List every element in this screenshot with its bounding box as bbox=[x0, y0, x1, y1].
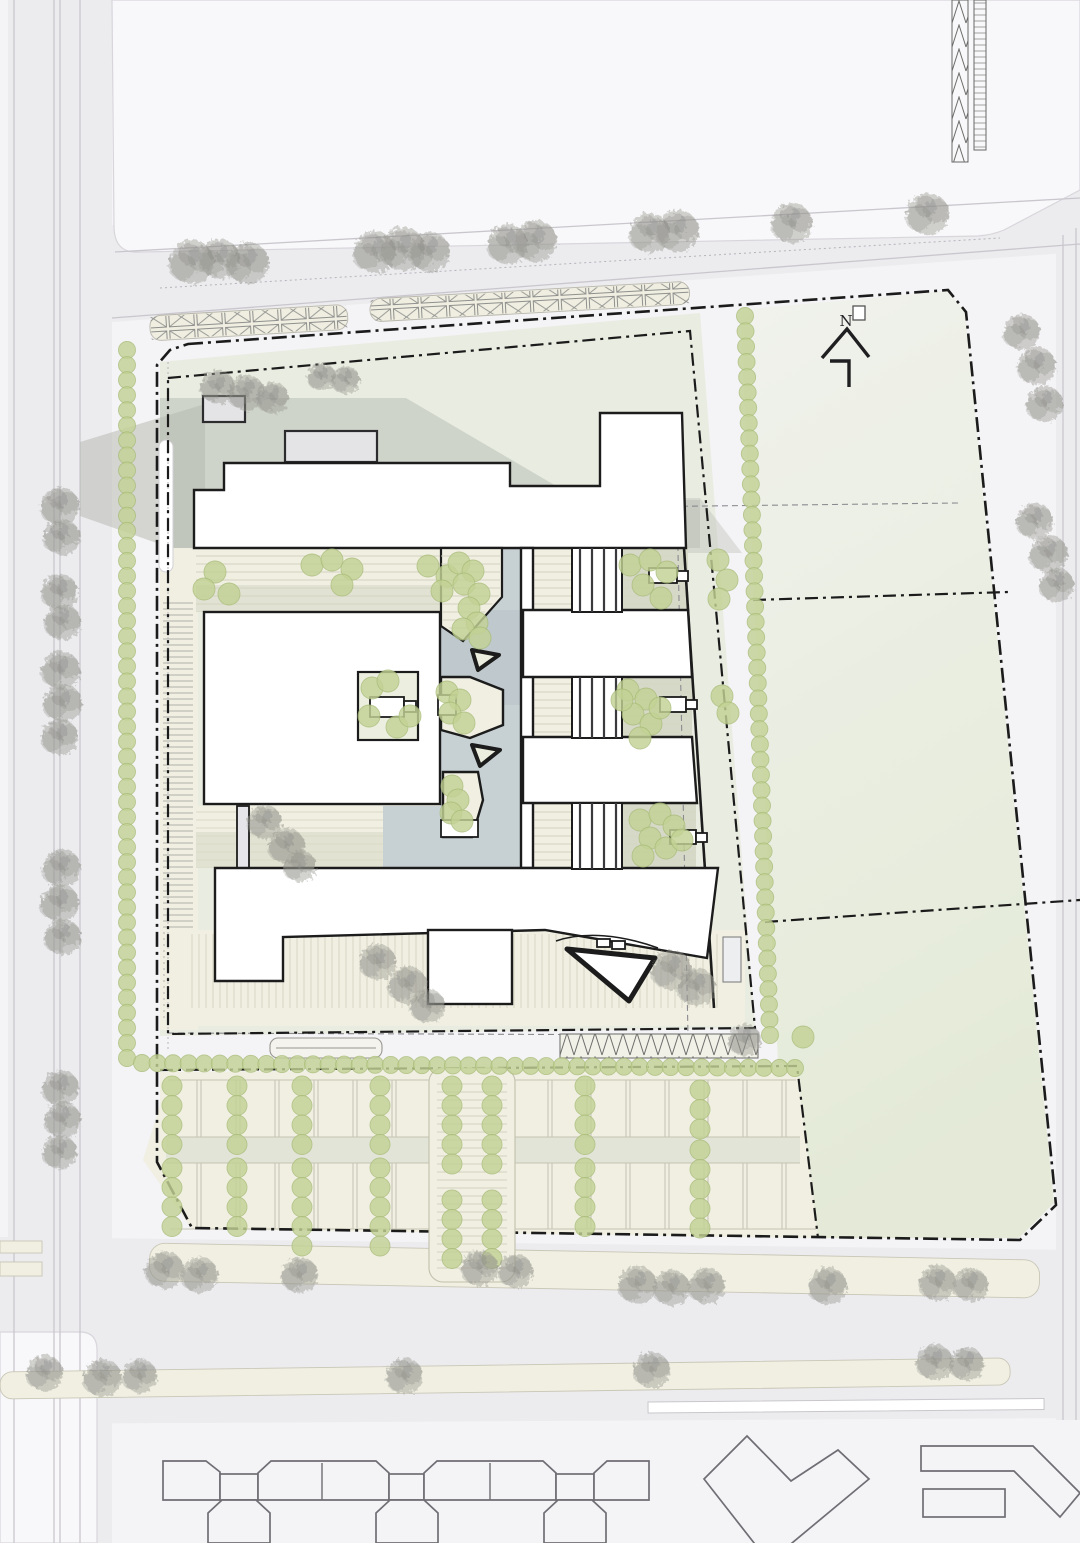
shrub-icon bbox=[162, 1096, 182, 1116]
shrub-icon bbox=[320, 1056, 337, 1073]
shrub-icon bbox=[482, 1210, 502, 1230]
shrub-icon bbox=[756, 874, 773, 891]
west-crossing-strip-2 bbox=[0, 1262, 42, 1276]
shrub-icon bbox=[453, 712, 475, 734]
shrub-icon bbox=[662, 1059, 679, 1076]
shrub-icon bbox=[227, 1096, 247, 1116]
shrub-icon bbox=[744, 522, 761, 539]
shrub-icon bbox=[629, 727, 651, 749]
shrub-icon bbox=[301, 554, 323, 576]
shrub-icon bbox=[119, 552, 136, 569]
shrub-icon bbox=[749, 675, 766, 692]
shrub-icon bbox=[273, 1056, 290, 1073]
shrub-icon bbox=[162, 1076, 182, 1096]
shrub-icon bbox=[742, 460, 759, 477]
shrub-icon bbox=[119, 537, 136, 554]
shrub-icon bbox=[162, 1158, 182, 1178]
shrub-icon bbox=[193, 578, 215, 600]
shrub-icon bbox=[750, 690, 767, 707]
rowhouse-1 bbox=[163, 1461, 220, 1500]
shrub-icon bbox=[134, 1055, 151, 1072]
shrub-icon bbox=[753, 782, 770, 799]
shrub-icon bbox=[748, 629, 765, 646]
shrub-icon bbox=[119, 974, 136, 991]
shrub-icon bbox=[632, 845, 654, 867]
shrub-icon bbox=[292, 1115, 312, 1135]
shrub-icon bbox=[119, 643, 136, 660]
shrub-icon bbox=[611, 689, 633, 711]
shrub-icon bbox=[717, 702, 739, 724]
shrub-icon bbox=[649, 697, 671, 719]
shrub-icon bbox=[227, 1178, 247, 1198]
shrub-icon bbox=[119, 417, 136, 434]
shrub-icon bbox=[119, 357, 136, 374]
shrub-icon bbox=[351, 1056, 368, 1073]
east-wing-3 bbox=[523, 737, 697, 803]
shrub-icon bbox=[631, 1058, 648, 1075]
shrub-icon bbox=[227, 1055, 244, 1072]
shrub-icon bbox=[292, 1096, 312, 1116]
shrub-icon bbox=[747, 613, 764, 630]
shrub-icon bbox=[119, 869, 136, 886]
shrub-icon bbox=[743, 491, 760, 508]
shrub-icon bbox=[358, 705, 380, 727]
shrub-icon bbox=[482, 1190, 502, 1210]
shrub-icon bbox=[227, 1135, 247, 1155]
shrub-icon bbox=[744, 537, 761, 554]
shrub-icon bbox=[292, 1135, 312, 1155]
rowhouse-link-3 bbox=[556, 1474, 594, 1500]
shrub-icon bbox=[444, 1057, 461, 1074]
shrub-icon bbox=[739, 369, 756, 386]
bumpout-1b bbox=[677, 571, 688, 581]
shrub-icon bbox=[119, 733, 136, 750]
shrub-icon bbox=[690, 1100, 710, 1120]
rowhouse-4 bbox=[594, 1461, 649, 1500]
shrub-icon bbox=[370, 1096, 390, 1116]
shrub-icon bbox=[709, 1059, 726, 1076]
shrub-icon bbox=[739, 384, 756, 401]
shrub-icon bbox=[119, 432, 136, 449]
rowhouse-link-2 bbox=[389, 1474, 424, 1500]
shrub-icon bbox=[690, 1199, 710, 1219]
shrub-icon bbox=[553, 1058, 570, 1075]
shrub-icon bbox=[377, 670, 399, 692]
shrub-icon bbox=[575, 1096, 595, 1116]
shrub-icon bbox=[442, 1154, 462, 1174]
shrub-icon bbox=[482, 1135, 502, 1155]
shrub-icon bbox=[693, 1059, 710, 1076]
shrub-icon bbox=[227, 1076, 247, 1096]
shrub-icon bbox=[757, 889, 774, 906]
shrub-icon bbox=[119, 959, 136, 976]
shrub-icon bbox=[755, 843, 772, 860]
shrub-icon bbox=[413, 1057, 430, 1074]
north-label: N bbox=[839, 312, 852, 330]
shrub-icon bbox=[119, 944, 136, 961]
shrub-icon bbox=[759, 950, 776, 967]
shrub-icon bbox=[742, 476, 759, 493]
shrub-icon bbox=[584, 1058, 601, 1075]
shrub-icon bbox=[451, 810, 473, 832]
shrub-icon bbox=[746, 583, 763, 600]
shrub-icon bbox=[760, 996, 777, 1013]
shrub-icon bbox=[119, 628, 136, 645]
shrub-icon bbox=[754, 797, 771, 814]
shrub-icon bbox=[787, 1060, 804, 1077]
shrub-icon bbox=[538, 1058, 555, 1075]
shrub-icon bbox=[442, 1096, 462, 1116]
shrub-icon bbox=[476, 1057, 493, 1074]
rowhouse-stem-2 bbox=[376, 1500, 438, 1543]
shrub-icon bbox=[482, 1115, 502, 1135]
shrub-icon bbox=[741, 445, 758, 462]
shrub-icon bbox=[740, 415, 757, 432]
shrub-icon bbox=[119, 718, 136, 735]
shrub-icon bbox=[575, 1158, 595, 1178]
shrub-icon bbox=[119, 763, 136, 780]
shrub-icon bbox=[370, 1197, 390, 1217]
shrub-icon bbox=[600, 1058, 617, 1075]
shrub-icon bbox=[460, 1057, 477, 1074]
shrub-icon bbox=[370, 1076, 390, 1096]
shrub-icon bbox=[119, 613, 136, 630]
shrub-icon bbox=[292, 1076, 312, 1096]
rowhouse-stem-1 bbox=[208, 1500, 270, 1543]
shrub-icon bbox=[619, 554, 641, 576]
shrub-icon bbox=[162, 1135, 182, 1155]
shrub-icon bbox=[119, 462, 136, 479]
shrub-icon bbox=[442, 1229, 462, 1249]
shrub-icon bbox=[119, 778, 136, 795]
east-ramp bbox=[723, 937, 741, 982]
shrub-icon bbox=[752, 751, 769, 768]
shrub-icon bbox=[746, 568, 763, 585]
central-link-corridor bbox=[521, 548, 533, 868]
shrub-icon bbox=[370, 1217, 390, 1237]
gap3-link bbox=[237, 806, 249, 868]
shrub-icon bbox=[292, 1178, 312, 1198]
shrub-icon bbox=[575, 1217, 595, 1237]
shrub-icon bbox=[671, 829, 693, 851]
shrub-icon bbox=[738, 353, 755, 370]
west-crossing-strip-1 bbox=[0, 1241, 42, 1253]
shrub-icon bbox=[724, 1059, 741, 1076]
shrub-icon bbox=[119, 748, 136, 765]
shrub-icon bbox=[119, 387, 136, 404]
shrub-icon bbox=[690, 1119, 710, 1139]
shrub-icon bbox=[429, 1057, 446, 1074]
shrub-icon bbox=[745, 552, 762, 569]
shrub-icon bbox=[399, 705, 421, 727]
annex-north bbox=[285, 431, 377, 462]
shrub-icon bbox=[755, 828, 772, 845]
shrub-icon bbox=[321, 549, 343, 571]
bumpout-3b bbox=[696, 833, 707, 842]
shrub-icon bbox=[227, 1197, 247, 1217]
shrub-icon bbox=[575, 1115, 595, 1135]
shrub-icon bbox=[292, 1217, 312, 1237]
shrub-icon bbox=[442, 1076, 462, 1096]
shrub-icon bbox=[119, 808, 136, 825]
shrub-icon bbox=[370, 1135, 390, 1155]
shrub-icon bbox=[292, 1236, 312, 1256]
shrub-icon bbox=[242, 1055, 259, 1072]
shrub-icon bbox=[162, 1115, 182, 1135]
shrub-icon bbox=[762, 1027, 779, 1044]
shrub-icon bbox=[752, 766, 769, 783]
shrub-icon bbox=[442, 1249, 462, 1269]
shrub-icon bbox=[119, 1004, 136, 1021]
shrub-icon bbox=[482, 1096, 502, 1116]
shrub-icon bbox=[707, 549, 729, 571]
shrub-icon bbox=[741, 430, 758, 447]
west-dropoff-lane bbox=[159, 440, 173, 572]
shrub-icon bbox=[119, 1034, 136, 1051]
shrub-icon bbox=[119, 929, 136, 946]
shrub-icon bbox=[575, 1076, 595, 1096]
shrub-icon bbox=[507, 1057, 524, 1074]
shrub-icon bbox=[370, 1178, 390, 1198]
shrub-icon bbox=[119, 673, 136, 690]
shrub-icon bbox=[442, 1115, 462, 1135]
shrub-icon bbox=[761, 1011, 778, 1028]
shrub-icon bbox=[119, 793, 136, 810]
shrub-icon bbox=[740, 1059, 757, 1076]
shrub-icon bbox=[632, 574, 654, 596]
shrub-icon bbox=[258, 1055, 275, 1072]
shrub-icon bbox=[119, 583, 136, 600]
shrub-icon bbox=[575, 1197, 595, 1217]
canopy-stair-2 bbox=[612, 941, 625, 949]
shrub-icon bbox=[749, 659, 766, 676]
shrub-icon bbox=[431, 580, 453, 602]
shrub-icon bbox=[482, 1154, 502, 1174]
shrub-icon bbox=[211, 1055, 228, 1072]
shrub-icon bbox=[331, 574, 353, 596]
shrub-icon bbox=[758, 919, 775, 936]
shrub-icon bbox=[119, 507, 136, 524]
site-entrance-marker-2 bbox=[853, 306, 865, 320]
shrub-icon bbox=[759, 965, 776, 982]
shrub-icon bbox=[737, 308, 754, 325]
shrub-icon bbox=[758, 935, 775, 952]
bumpout-2b bbox=[686, 700, 697, 709]
shrub-icon bbox=[367, 1056, 384, 1073]
shrub-icon bbox=[755, 1059, 772, 1076]
shrub-icon bbox=[119, 522, 136, 539]
shrub-icon bbox=[119, 1019, 136, 1036]
shrub-icon bbox=[227, 1158, 247, 1178]
shrub-icon bbox=[690, 1218, 710, 1238]
shrub-icon bbox=[678, 1059, 695, 1076]
shrub-icon bbox=[690, 1140, 710, 1160]
shrub-icon bbox=[119, 567, 136, 584]
shrub-icon bbox=[218, 583, 240, 605]
shrub-icon bbox=[482, 1076, 502, 1096]
shrub-icon bbox=[575, 1178, 595, 1198]
shrub-icon bbox=[771, 1059, 788, 1076]
shrub-icon bbox=[119, 854, 136, 871]
shrub-icon bbox=[442, 1135, 462, 1155]
shrub-icon bbox=[119, 598, 136, 615]
shrub-icon bbox=[119, 372, 136, 389]
shrub-icon bbox=[162, 1217, 182, 1237]
shrub-icon bbox=[119, 477, 136, 494]
shrub-icon bbox=[162, 1178, 182, 1198]
shrub-icon bbox=[708, 588, 730, 610]
shrub-icon bbox=[748, 644, 765, 661]
shrub-icon bbox=[119, 914, 136, 931]
shrub-icon bbox=[180, 1055, 197, 1072]
shrub-icon bbox=[647, 1058, 664, 1075]
shrub-icon bbox=[119, 1050, 136, 1067]
shrub-icon bbox=[398, 1057, 415, 1074]
shrub-icon bbox=[482, 1229, 502, 1249]
shrub-icon bbox=[656, 561, 678, 583]
canopy-stair-1 bbox=[597, 939, 610, 947]
shrub-icon bbox=[650, 587, 672, 609]
shrub-icon bbox=[119, 899, 136, 916]
rowhouse-stem-3 bbox=[544, 1500, 606, 1543]
shrub-icon bbox=[760, 981, 777, 998]
shrub-icon bbox=[336, 1056, 353, 1073]
shrub-icon bbox=[469, 627, 491, 649]
shrub-icon bbox=[149, 1055, 166, 1072]
shrub-icon bbox=[119, 824, 136, 841]
shrub-icon bbox=[442, 1210, 462, 1230]
shrub-icon bbox=[750, 705, 767, 722]
shrub-icon bbox=[162, 1197, 182, 1217]
shrub-icon bbox=[491, 1057, 508, 1074]
shrub-icon bbox=[196, 1055, 213, 1072]
shrub-icon bbox=[792, 1026, 814, 1048]
shrub-icon bbox=[615, 1058, 632, 1075]
shrub-icon bbox=[119, 658, 136, 675]
shrub-icon bbox=[754, 812, 771, 829]
shrub-icon bbox=[751, 721, 768, 738]
shrub-icon bbox=[743, 506, 760, 523]
shrub-icon bbox=[690, 1179, 710, 1199]
shrub-icon bbox=[305, 1056, 322, 1073]
shrub-icon bbox=[119, 839, 136, 856]
shrub-icon bbox=[690, 1080, 710, 1100]
shrub-icon bbox=[522, 1057, 539, 1074]
shrub-icon bbox=[119, 703, 136, 720]
shrub-icon bbox=[292, 1197, 312, 1217]
shrub-icon bbox=[165, 1055, 182, 1072]
shrub-icon bbox=[738, 338, 755, 355]
shrub-icon bbox=[756, 858, 773, 875]
shrub-icon bbox=[227, 1115, 247, 1135]
shrub-icon bbox=[737, 323, 754, 340]
rowhouse-link-1 bbox=[220, 1474, 258, 1500]
shrub-icon bbox=[740, 399, 757, 416]
shrub-icon bbox=[747, 598, 764, 615]
shrub-icon bbox=[370, 1236, 390, 1256]
shrub-icon bbox=[292, 1158, 312, 1178]
shrub-icon bbox=[119, 402, 136, 419]
site-plan-page: N bbox=[0, 0, 1080, 1543]
shrub-icon bbox=[690, 1160, 710, 1180]
shrub-icon bbox=[119, 447, 136, 464]
east-wing-2 bbox=[523, 610, 692, 677]
shrub-icon bbox=[575, 1135, 595, 1155]
shrub-icon bbox=[370, 1115, 390, 1135]
site-plan-drawing: N bbox=[0, 0, 1080, 1543]
shrub-icon bbox=[370, 1158, 390, 1178]
shrub-icon bbox=[119, 688, 136, 705]
shrub-icon bbox=[751, 736, 768, 753]
shrub-icon bbox=[119, 884, 136, 901]
shrub-icon bbox=[569, 1058, 586, 1075]
shrub-icon bbox=[442, 1190, 462, 1210]
south-entrance-stem bbox=[428, 930, 512, 1004]
shrub-icon bbox=[289, 1056, 306, 1073]
shrub-icon bbox=[119, 492, 136, 509]
shrub-icon bbox=[382, 1056, 399, 1073]
transit-strip-1 bbox=[952, 0, 968, 162]
shrub-icon bbox=[119, 989, 136, 1006]
bar-building bbox=[923, 1489, 1005, 1517]
rowhouse-2 bbox=[258, 1461, 389, 1500]
shrub-icon bbox=[757, 904, 774, 921]
transit-strip-2 bbox=[974, 0, 986, 150]
shrub-icon bbox=[227, 1217, 247, 1237]
shrub-icon bbox=[119, 342, 136, 359]
shrub-icon bbox=[417, 555, 439, 577]
